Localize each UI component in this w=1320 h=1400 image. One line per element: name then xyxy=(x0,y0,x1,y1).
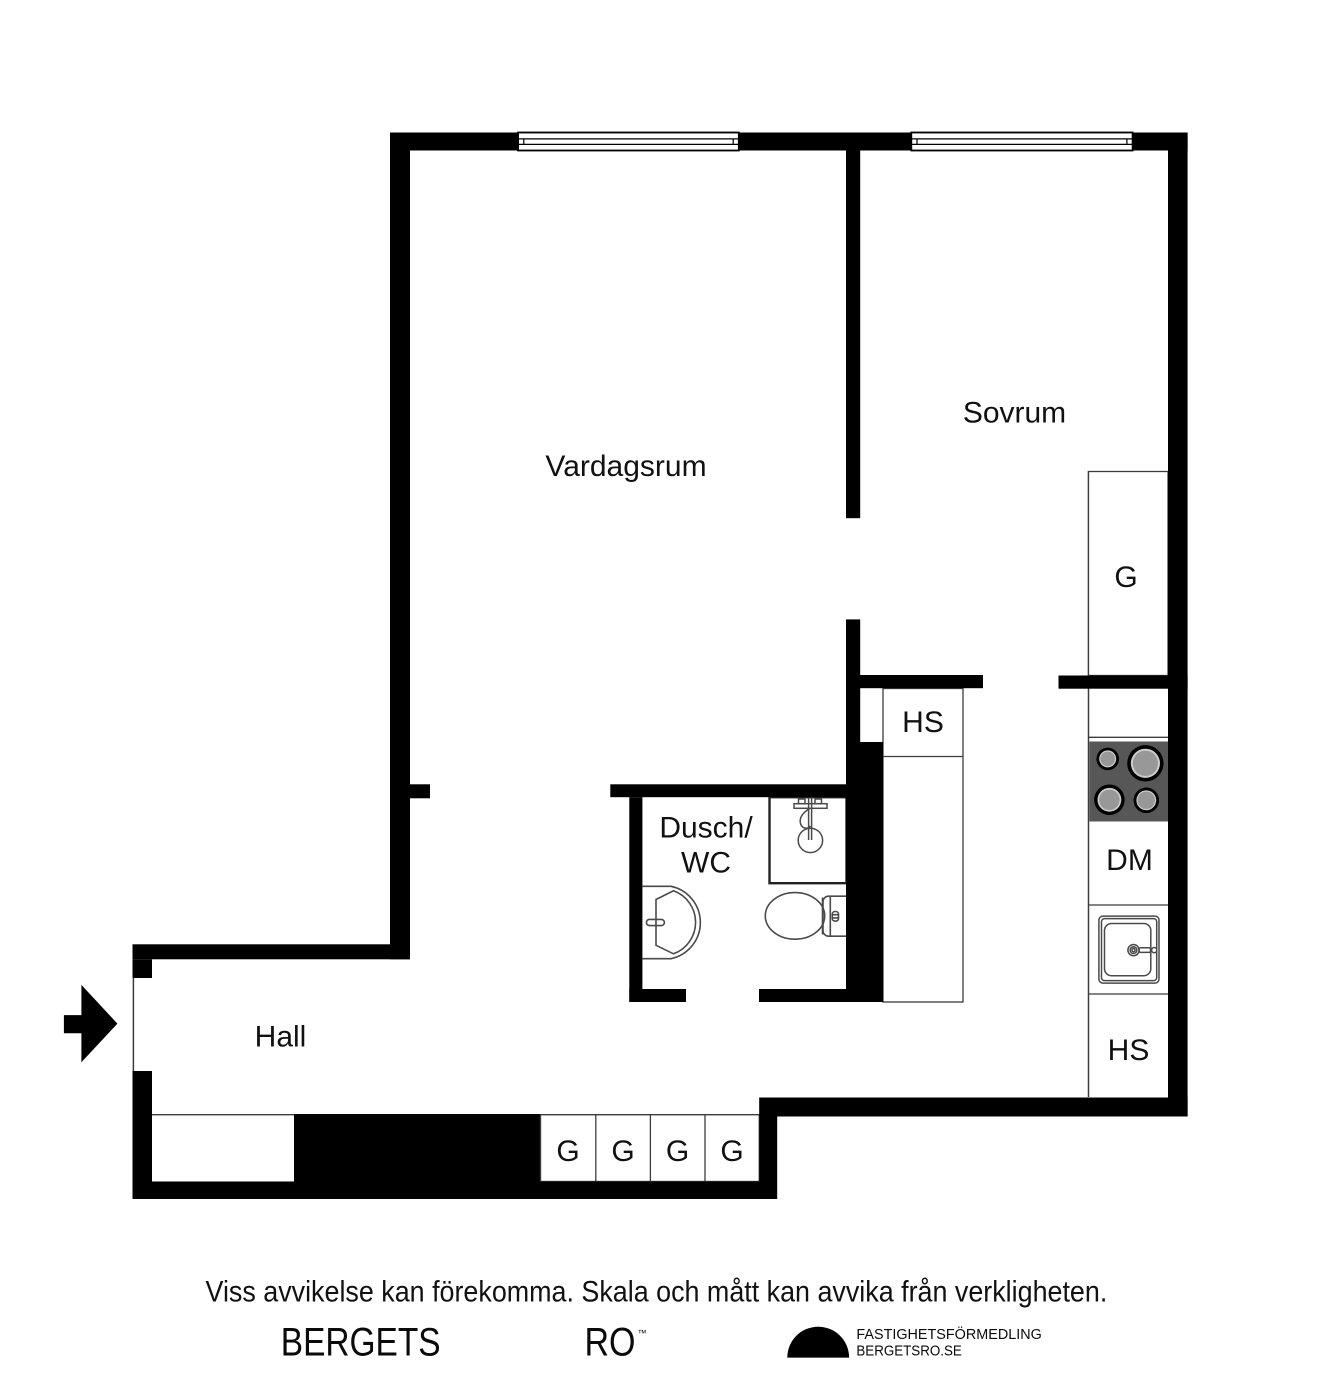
svg-text:™: ™ xyxy=(638,1328,647,1338)
svg-text:HS: HS xyxy=(1108,1034,1150,1067)
svg-text:DM: DM xyxy=(1106,844,1153,877)
svg-text:BERGETS: BERGETS xyxy=(281,1320,441,1364)
svg-text:G: G xyxy=(611,1135,634,1168)
svg-text:FASTIGHETSFÖRMEDLING: FASTIGHETSFÖRMEDLING xyxy=(856,1325,1041,1343)
svg-text:G: G xyxy=(1114,561,1137,594)
svg-text:Hall: Hall xyxy=(255,1020,307,1053)
svg-text:BERGETSRO.SE: BERGETSRO.SE xyxy=(856,1344,962,1360)
svg-text:Sovrum: Sovrum xyxy=(963,397,1066,430)
svg-text:Dusch/: Dusch/ xyxy=(659,812,753,845)
svg-text:Viss avvikelse kan förekomma.: Viss avvikelse kan förekomma. Skala och … xyxy=(206,1276,1108,1309)
svg-text:RO: RO xyxy=(585,1320,636,1364)
svg-text:G: G xyxy=(666,1135,689,1168)
svg-text:WC: WC xyxy=(681,847,731,880)
svg-text:HS: HS xyxy=(902,706,944,739)
svg-text:Vardagsrum: Vardagsrum xyxy=(545,450,706,483)
svg-text:G: G xyxy=(720,1135,743,1168)
svg-text:G: G xyxy=(556,1135,579,1168)
